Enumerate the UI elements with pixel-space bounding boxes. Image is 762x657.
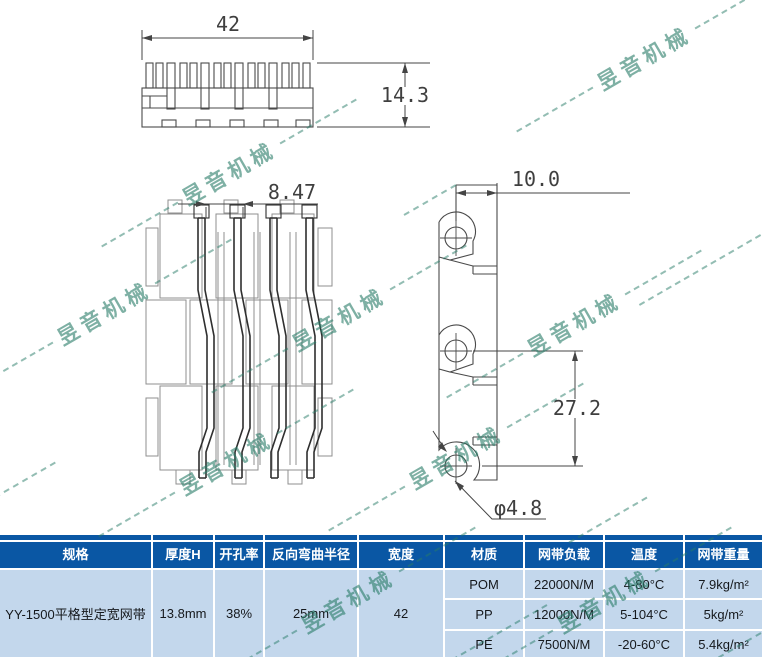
spec-width-cell: 42: [359, 570, 443, 657]
material-cell: PP: [445, 600, 523, 629]
dim-label-top-width: 42: [216, 12, 240, 36]
belt-profile-view: [142, 63, 313, 127]
weight-cell: 7.9kg/m²: [685, 570, 762, 598]
technical-drawing: 42 14.3: [0, 0, 762, 535]
spec-table: 规格 厚度H 开孔率 反向弯曲半径 宽度 材质 网带负载 温度 网带重量 YY-…: [0, 535, 762, 657]
weight-cell: 5.4kg/m²: [685, 631, 762, 657]
material-cell: PE: [445, 631, 523, 657]
dim-label-profile-height: 14.3: [381, 83, 429, 107]
temperature-cell: 4-80°C: [605, 570, 683, 598]
col-header-load: 网带负载: [525, 535, 603, 568]
spec-bend-radius-cell: 25mm: [265, 570, 357, 657]
col-header-open-ratio: 开孔率: [215, 535, 263, 568]
profile-feet: [162, 120, 310, 127]
col-header-material: 材质: [445, 535, 523, 568]
load-cell: 12000N/M: [525, 600, 603, 629]
spec-sheet-page: 42 14.3: [0, 0, 762, 657]
load-cell: 22000N/M: [525, 570, 603, 598]
belt-mesh-top-view: [146, 200, 332, 484]
col-header-spec: 规格: [0, 535, 151, 568]
belt-link-side-view: [439, 185, 497, 484]
spec-thickness-cell: 13.8mm: [153, 570, 213, 657]
hinge-holes: [440, 193, 472, 484]
load-cell: 7500N/M: [525, 631, 603, 657]
col-header-width: 宽度: [359, 535, 443, 568]
temperature-cell: -20-60°C: [605, 631, 683, 657]
spec-name-cell: YY-1500平格型定宽网带: [0, 570, 151, 657]
profile-hinge-plates: [167, 63, 277, 109]
weight-cell: 5kg/m²: [685, 600, 762, 629]
profile-prongs: [146, 63, 310, 88]
col-header-bend-radius: 反向弯曲半径: [265, 535, 357, 568]
col-header-thickness: 厚度H: [153, 535, 213, 568]
dim-label-hole-diameter: φ4.8: [494, 496, 542, 520]
spec-open-ratio-cell: 38%: [215, 570, 263, 657]
dim-label-pitch: 8.47: [268, 180, 316, 204]
col-header-weight: 网带重量: [685, 535, 762, 568]
temperature-cell: 5-104°C: [605, 600, 683, 629]
dim-label-hole-spacing: 27.2: [553, 396, 601, 420]
material-cell: POM: [445, 570, 523, 598]
col-header-temperature: 温度: [605, 535, 683, 568]
dim-label-link-width: 10.0: [512, 167, 560, 191]
